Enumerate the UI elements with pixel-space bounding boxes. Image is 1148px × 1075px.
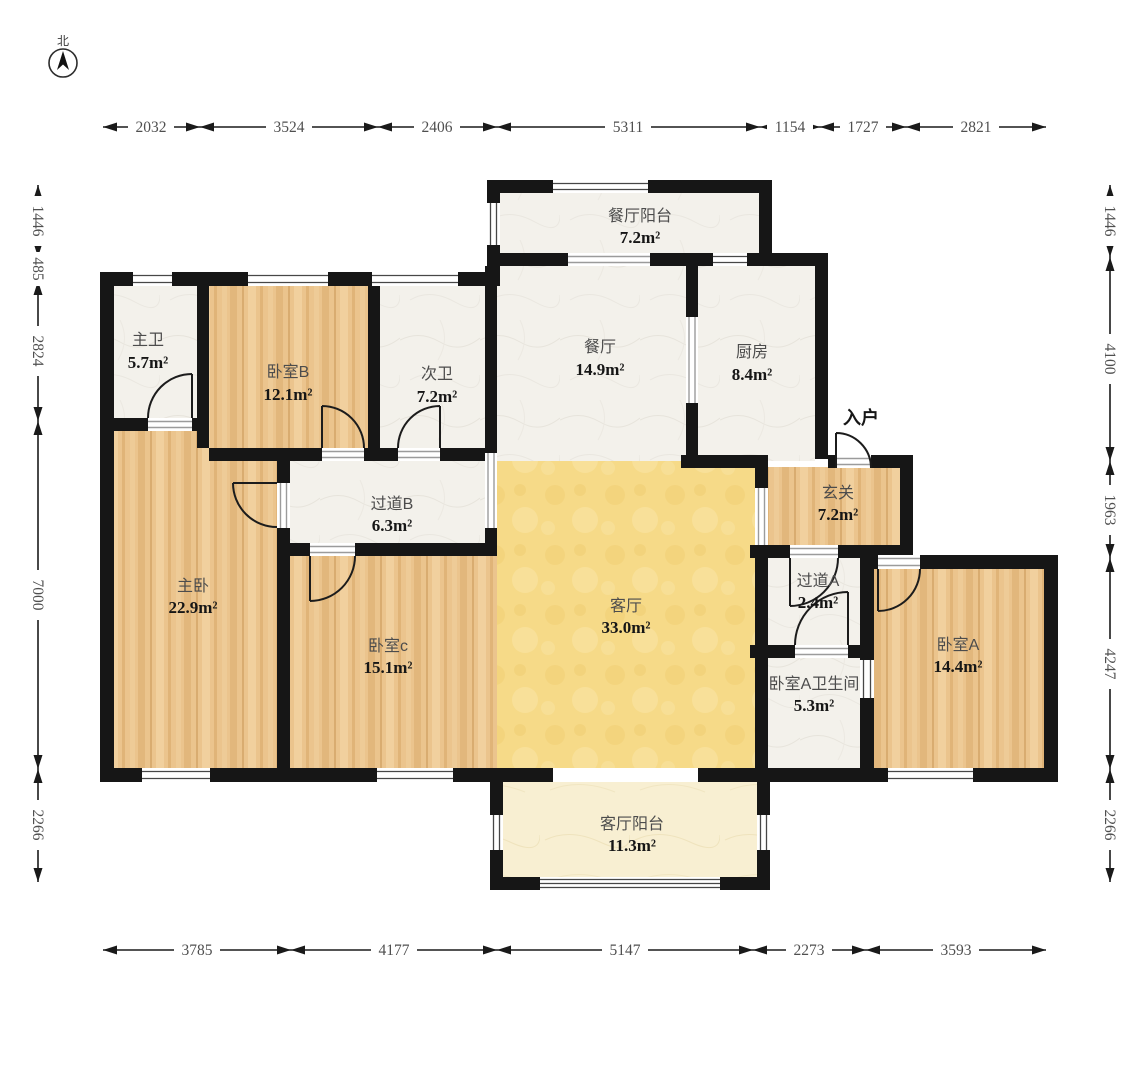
svg-text:卧室B: 卧室B <box>267 363 310 381</box>
svg-text:餐厅阳台: 餐厅阳台 <box>608 207 672 225</box>
compass-north-label: 北 <box>57 34 69 48</box>
door-opening <box>148 418 192 431</box>
door-opening <box>878 555 920 569</box>
dimension-top: 2032 3524 2406 5311 1154 1727 2821 <box>103 119 1046 136</box>
svg-text:卧室A: 卧室A <box>937 636 980 654</box>
door-opening <box>790 545 838 558</box>
svg-text:2.4m²: 2.4m² <box>798 593 839 612</box>
door-opening <box>836 455 871 468</box>
dimension-bottom: 3785 4177 5147 2273 3593 <box>103 942 1046 959</box>
svg-text:12.1m²: 12.1m² <box>263 385 312 404</box>
compass: 北 <box>49 34 77 77</box>
floor-master-bath <box>114 286 197 418</box>
entry-label: 入户 <box>843 407 879 428</box>
door-opening <box>277 483 290 528</box>
door-opening <box>310 543 355 556</box>
dimension-label: 3524 <box>274 119 305 136</box>
dimension-label: 1446 <box>29 206 46 237</box>
floorplan: 餐厅阳台7.2m² 主卫5.7m² 卧室B12.1m² 次卫7.2m² 餐厅14… <box>0 0 1148 1075</box>
dimension-label: 4100 <box>1101 344 1118 375</box>
svg-text:客厅阳台: 客厅阳台 <box>600 815 664 833</box>
svg-text:7.2m²: 7.2m² <box>818 505 859 524</box>
window <box>860 660 874 698</box>
svg-text:5.3m²: 5.3m² <box>794 696 835 715</box>
dimension-label: 2824 <box>29 336 46 367</box>
dimension-label: 5311 <box>613 119 643 136</box>
svg-text:5.7m²: 5.7m² <box>128 353 169 372</box>
svg-text:卧室c: 卧室c <box>368 637 408 655</box>
dimension-label: 1154 <box>775 119 806 136</box>
door-opening <box>322 448 364 461</box>
dimension-label: 2821 <box>961 119 992 136</box>
passage-opening <box>485 453 497 528</box>
svg-text:厨房: 厨房 <box>736 343 768 361</box>
window <box>553 180 648 193</box>
window <box>372 272 458 286</box>
svg-text:6.3m²: 6.3m² <box>372 516 413 535</box>
svg-text:15.1m²: 15.1m² <box>363 658 412 677</box>
window <box>540 877 720 890</box>
passage-opening <box>755 488 768 545</box>
dimension-label: 4247 <box>1101 649 1118 680</box>
dimension-right: 1446 4100 1963 4247 2266 <box>1101 185 1119 882</box>
window <box>248 272 328 286</box>
window <box>133 272 172 286</box>
svg-text:8.4m²: 8.4m² <box>732 365 773 384</box>
dimension-label: 1963 <box>1101 495 1118 526</box>
passage-opening <box>686 317 698 403</box>
svg-text:主卧: 主卧 <box>177 577 209 595</box>
dimension-label: 2273 <box>794 942 825 959</box>
dimension-label: 2032 <box>136 119 167 136</box>
svg-text:14.9m²: 14.9m² <box>575 360 624 379</box>
window <box>757 815 770 850</box>
svg-text:11.3m²: 11.3m² <box>608 836 656 855</box>
dimension-label: 7000 <box>29 580 46 611</box>
dimension-left: 1446 485 2824 7000 2266 <box>29 185 47 882</box>
window <box>142 768 210 782</box>
dimension-label: 3785 <box>182 942 213 959</box>
svg-text:餐厅: 餐厅 <box>584 338 616 356</box>
dimension-label: 1446 <box>1101 206 1118 237</box>
svg-text:过道B: 过道B <box>371 495 414 513</box>
door-opening <box>795 645 848 658</box>
dimension-label: 4177 <box>379 942 410 959</box>
svg-text:卧室A卫生间: 卧室A卫生间 <box>769 675 860 693</box>
svg-text:7.2m²: 7.2m² <box>417 387 458 406</box>
dimension-label: 485 <box>29 257 46 281</box>
passage-opening <box>568 253 650 266</box>
svg-text:22.9m²: 22.9m² <box>168 598 217 617</box>
svg-text:玄关: 玄关 <box>822 484 854 502</box>
window <box>377 768 453 782</box>
svg-text:14.4m²: 14.4m² <box>933 657 982 676</box>
svg-text:33.0m²: 33.0m² <box>601 618 650 637</box>
svg-text:主卫: 主卫 <box>132 331 164 349</box>
dimension-label: 5147 <box>610 942 641 959</box>
svg-text:7.2m²: 7.2m² <box>620 228 661 247</box>
dimension-label: 2266 <box>29 810 46 841</box>
dimension-label: 2266 <box>1101 810 1118 841</box>
window <box>888 768 973 782</box>
dimension-label: 3593 <box>941 942 972 959</box>
svg-text:过道A: 过道A <box>797 572 840 590</box>
dimension-label: 1727 <box>848 119 879 136</box>
door-opening <box>398 448 440 461</box>
dimension-label: 2406 <box>422 119 453 136</box>
window <box>713 253 747 266</box>
window <box>490 815 503 850</box>
svg-text:客厅: 客厅 <box>610 597 642 615</box>
floor-dining-kitchen <box>497 266 815 461</box>
svg-text:次卫: 次卫 <box>421 365 453 383</box>
window <box>487 203 500 245</box>
